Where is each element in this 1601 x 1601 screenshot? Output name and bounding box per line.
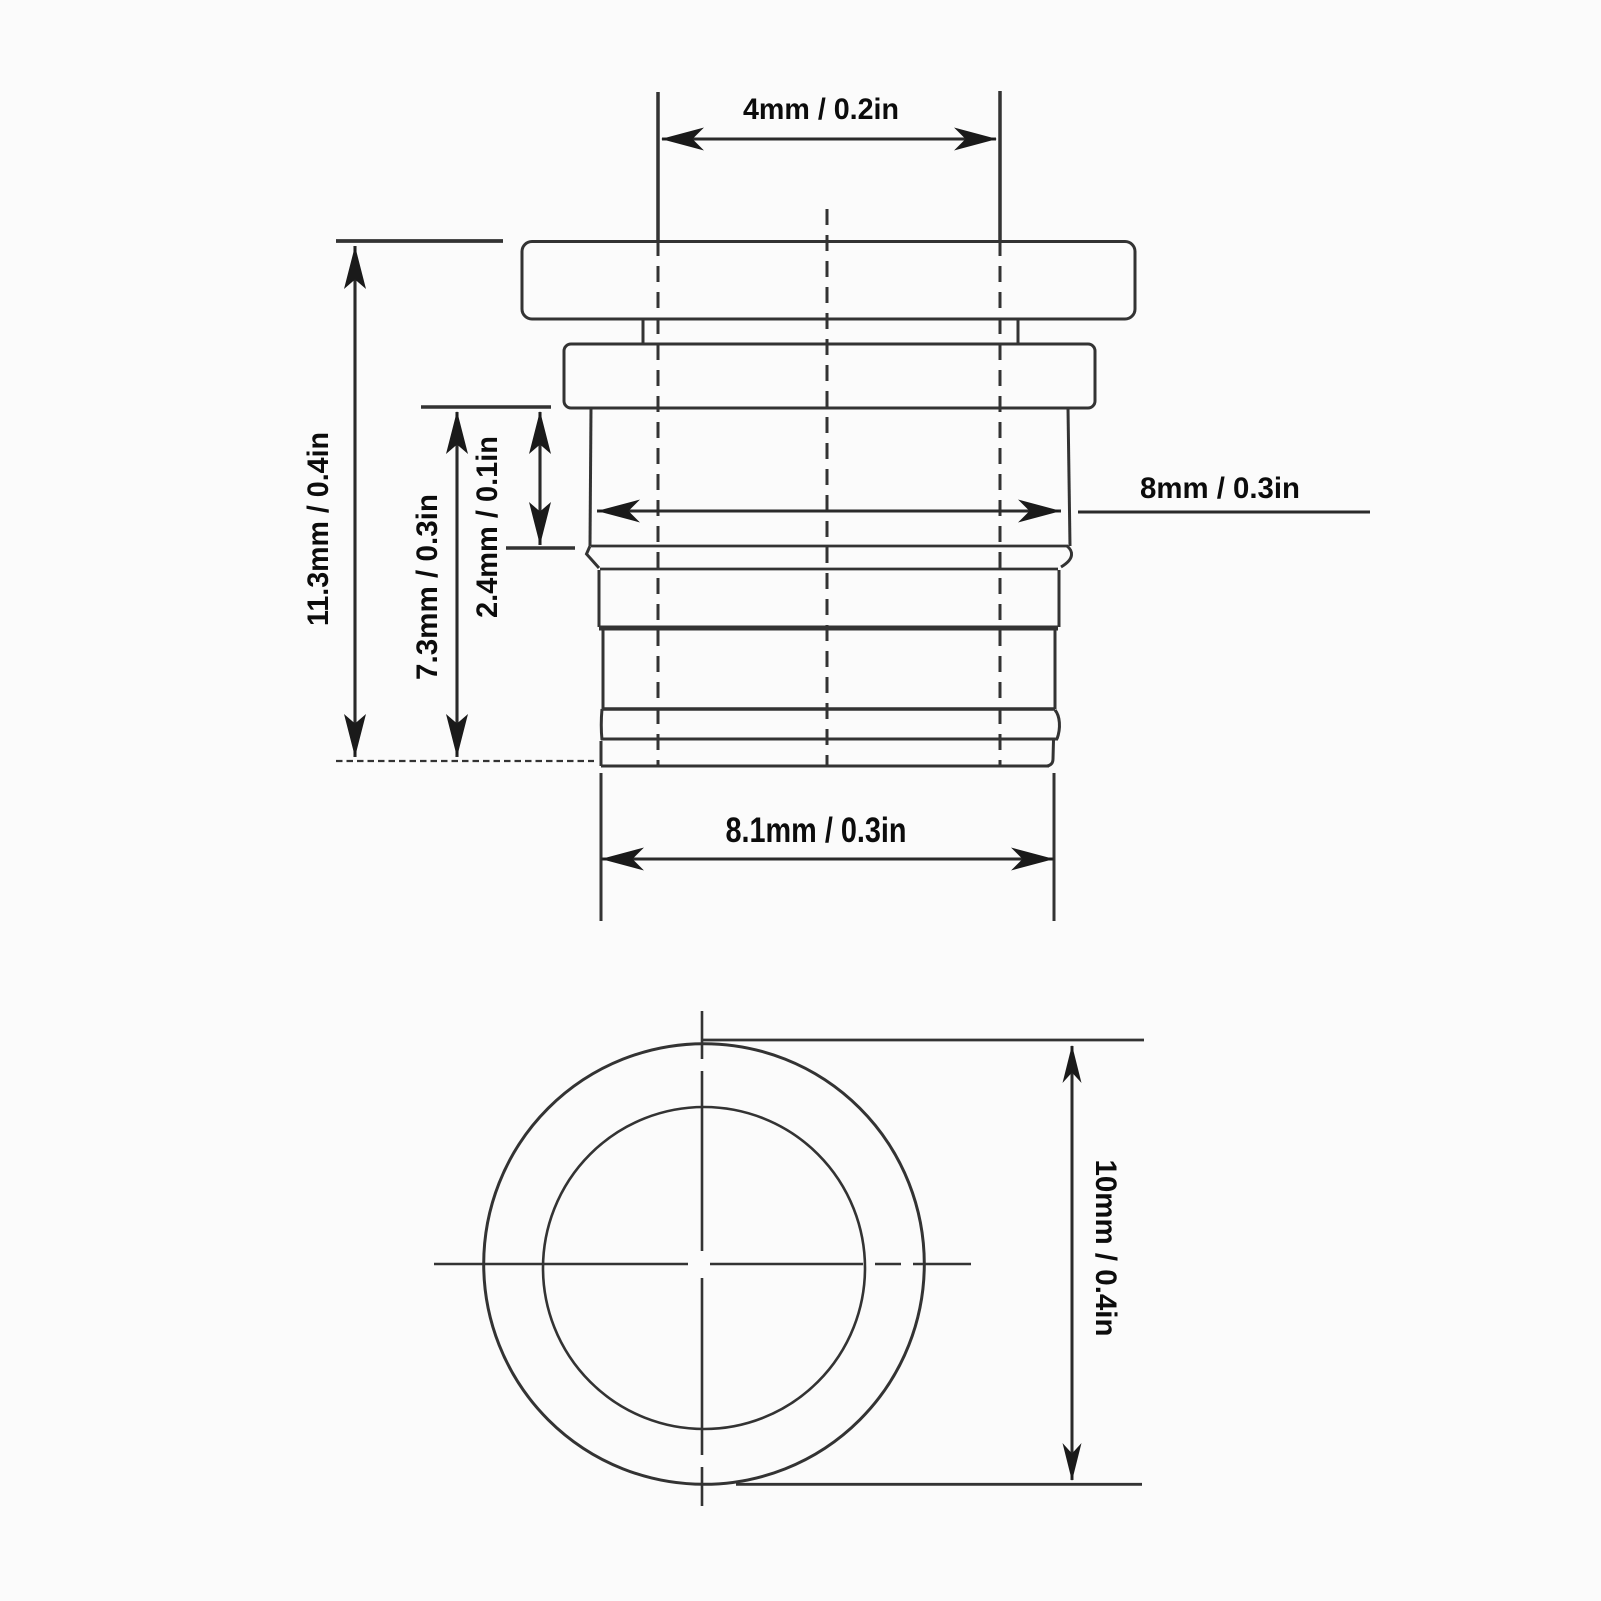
svg-text:8.1mm / 0.3in: 8.1mm / 0.3in	[726, 811, 907, 850]
svg-text:11.3mm / 0.4in: 11.3mm / 0.4in	[302, 432, 335, 626]
svg-text:8mm / 0.3in: 8mm / 0.3in	[1140, 472, 1300, 505]
svg-text:2.4mm / 0.1in: 2.4mm / 0.1in	[471, 436, 504, 618]
svg-text:4mm / 0.2in: 4mm / 0.2in	[743, 93, 899, 126]
svg-text:7.3mm / 0.3in: 7.3mm / 0.3in	[411, 494, 444, 680]
svg-text:10mm / 0.4in: 10mm / 0.4in	[1089, 1160, 1122, 1337]
